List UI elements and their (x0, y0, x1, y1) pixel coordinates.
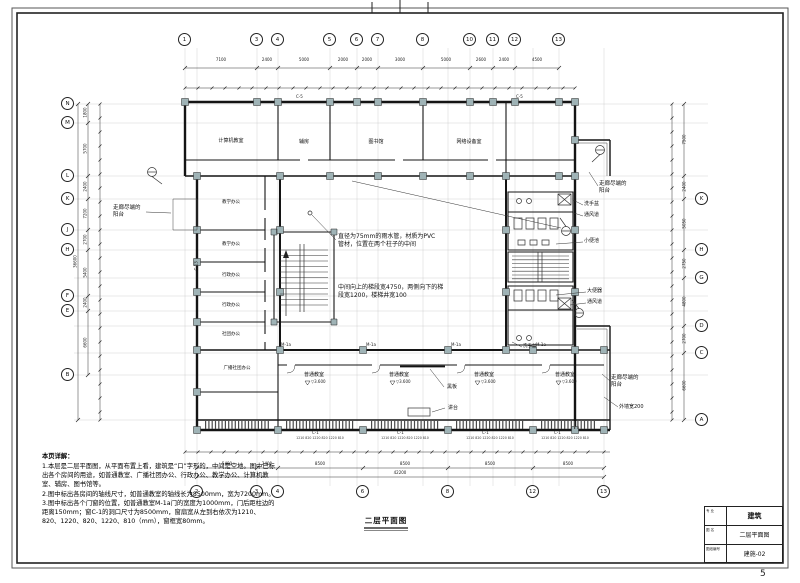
axis-bubble-right: H (695, 243, 708, 256)
drawing-name-value: 二层平面图 (727, 530, 782, 539)
podium-label: 讲台 (448, 405, 458, 411)
window-tag: C-1 (397, 430, 404, 435)
level-marker: ▽3.600 (481, 379, 496, 384)
room-label-broadcast: 广播社团办公 (207, 366, 267, 372)
notes-item: 2.图中标出各房间的轴线尺寸，如普通教室的轴线长为8500mm，宽为7200mm… (42, 490, 276, 499)
title-block: 专 业 建筑 图 名 二层平面图 图纸编号 建施-02 (704, 506, 783, 563)
axis-bubble-top: 8 (416, 33, 429, 46)
room-label-classroom: 普通教室 (540, 372, 590, 378)
washbasin-label: 洗手盆 (523, 344, 537, 350)
podium-rect (408, 408, 430, 416)
door-tag: M-1a (281, 342, 291, 347)
window-sash-dims: 1210 820 1220 820 1220 810 (464, 436, 516, 440)
balcony-note-topright: 走廊尽端的阳台 (599, 181, 629, 195)
dim-text: 8500 (475, 461, 505, 466)
title-block-row: 图纸编号 建施-02 (705, 544, 782, 562)
title-block-label: 图 名 (705, 526, 727, 543)
dim-text: 2400 (489, 57, 519, 62)
dim-text: 8500 (553, 461, 583, 466)
washbasin-label: 洗手盆 (584, 201, 599, 207)
dim-text: 2700 (83, 225, 88, 255)
room-label-classroom: 普通教室 (374, 372, 424, 378)
axis-bubble-top: 1 (178, 33, 191, 46)
plan-title-underline (364, 528, 408, 531)
axis-bubble-bottom: 8 (441, 485, 454, 498)
notes-item: 1.本层是二层平面图，从平面布置上看，建筑是“口”字形的，中间是空地。图中已标出… (42, 462, 276, 489)
room-label-teach-office: 教学办公 (206, 242, 256, 248)
level-marker-triangles (305, 381, 561, 385)
window-tag: C-1 (482, 430, 489, 435)
axis-bubble-top: 13 (552, 33, 565, 46)
level-marker: ▽3.600 (562, 379, 577, 384)
axis-bubble-left: F (61, 289, 74, 302)
door-tag: M-1a (366, 342, 376, 347)
rain-pipe-symbol (308, 211, 312, 215)
drawing-number-value: 建施-02 (727, 549, 782, 558)
dim-text: 2400 (83, 172, 88, 202)
dimension-ticks (76, 66, 686, 479)
axis-bubble-left: L (61, 169, 74, 182)
urinal-label: 小便池 (584, 238, 599, 244)
level-marker: ▽3.600 (311, 379, 326, 384)
axis-bubble-top: 6 (350, 33, 363, 46)
title-block-row: 专 业 建筑 (705, 507, 782, 525)
dim-text: 8500 (390, 461, 420, 466)
dim-text: 5700 (83, 134, 88, 164)
dim-text: 2400 (252, 57, 282, 62)
axis-bubble-right: A (695, 413, 708, 426)
axis-bubble-left: N (61, 97, 74, 110)
dim-text: 6600 (83, 328, 88, 358)
dim-text: 6600 (682, 371, 687, 401)
dim-text: 5050 (682, 209, 687, 239)
page-number: 5 (760, 569, 766, 579)
room-label-aux: 辅房 (292, 139, 316, 145)
axis-bubble-left: K (61, 192, 74, 205)
axis-bubble-left: E (61, 304, 74, 317)
window-tag-top: C-5 (296, 94, 303, 99)
dim-text: 4500 (522, 57, 552, 62)
dim-text: 1800 (83, 98, 88, 128)
title-block-row: 图 名 二层平面图 (705, 525, 782, 543)
dim-text: 2700 (682, 324, 687, 354)
axis-bubble-bottom: 12 (526, 485, 539, 498)
axis-bubble-right: K (695, 192, 708, 205)
drawing-sheet: { "page": { "number": "5" }, "titleblock… (0, 0, 800, 583)
dim-text: 3000 (385, 57, 415, 62)
window-tag-top: C-5 (516, 94, 523, 99)
room-label-teach-office: 教学办公 (206, 200, 256, 206)
dim-text: 2750 (682, 249, 687, 279)
notes-item: 3.图中标出各个门窗的位置，如普通教室M-1a门的宽度为1000mm，门后距柱边… (42, 499, 276, 526)
room-label-admin-office: 行政办公 (206, 303, 256, 309)
axis-bubble-top: 3 (250, 33, 263, 46)
room-label-admin-office: 行政办公 (206, 273, 256, 279)
axis-bubble-top: 7 (371, 33, 384, 46)
dim-text: 2400 (83, 288, 88, 318)
window-tag-left: C-13 (194, 251, 199, 271)
window-sash-dims: 1210 820 1220 820 1220 810 (294, 436, 346, 440)
rain-pipe-note: 直径为75mm的雨水管，材质为PVC管材，位置在两个柱子的中间 (338, 233, 438, 248)
dim-text: 7500 (682, 125, 687, 155)
dim-text: 5000 (289, 57, 319, 62)
room-label-computer: 计算机教室 (206, 138, 256, 144)
dim-text: 4800 (682, 287, 687, 317)
door-tag: M-1a (536, 342, 546, 347)
exterior-wall-note: 外墙宽200 (619, 404, 644, 410)
vent-duct-label: 通风道 (584, 212, 599, 218)
dimension-lines (78, 68, 684, 477)
dim-text: 7100 (206, 57, 236, 62)
axis-bubble-left: B (61, 368, 74, 381)
discipline-value: 建筑 (727, 511, 782, 521)
dim-text: 5000 (431, 57, 461, 62)
axis-bubble-top: 11 (486, 33, 499, 46)
title-block-label: 专 业 (705, 507, 727, 525)
window-sash-dims: 1210 820 1220 820 1220 810 (539, 436, 591, 440)
dim-text: 8500 (305, 461, 335, 466)
notes-block: 本页详解： 1.本层是二层平面图，从平面布置上看，建筑是“口”字形的，中间是空地… (42, 452, 276, 526)
blackboard-label: 黑板 (447, 384, 457, 390)
window-tag: C-1 (312, 430, 319, 435)
vent-duct-label: 通风道 (587, 299, 602, 305)
room-label-library: 图书馆 (356, 139, 396, 145)
axis-bubble-right: G (695, 271, 708, 284)
axis-bubble-top: 5 (323, 33, 336, 46)
axis-bubble-top: 12 (508, 33, 521, 46)
columns (182, 99, 608, 434)
axis-bubble-top: 10 (463, 33, 476, 46)
plan-title: 二层平面图 (346, 515, 426, 526)
level-marker: ▽3.600 (396, 379, 411, 384)
dim-total-text: 42200 (385, 470, 415, 475)
axis-bubble-right: C (695, 346, 708, 359)
axis-bubble-right: D (695, 319, 708, 332)
window-tag: C-1 (554, 430, 561, 435)
balcony-note-left: 走廊尽端的阳台 (113, 205, 143, 219)
title-block-label: 图纸编号 (705, 545, 727, 562)
room-label-classroom: 普通教室 (459, 372, 509, 378)
window-sash-dims: 1210 820 1220 820 1220 810 (379, 436, 431, 440)
dim-text: 5400 (83, 258, 88, 288)
notes-heading: 本页详解： (42, 452, 276, 461)
axis-bubble-left: M (61, 116, 74, 129)
axis-bubble-bottom: 6 (356, 485, 369, 498)
dim-text: 2000 (352, 57, 382, 62)
balcony-note-bottomright: 走廊尽端的阳台 (611, 375, 641, 389)
room-label-classroom: 普通教室 (289, 372, 339, 378)
stair-width-note: 中间向上的梯段宽4750，两侧向下的梯段宽1200，楼梯井宽100 (338, 284, 444, 299)
door-tag: M-1a (451, 342, 461, 347)
walls-courtyard (278, 176, 508, 350)
axis-bubble-top: 4 (271, 33, 284, 46)
room-label-network: 网络设备室 (444, 139, 494, 145)
room-label-club-office: 社团办公 (206, 332, 256, 338)
toilet-label: 大便器 (587, 288, 602, 294)
axis-bubble-left: J (61, 223, 74, 236)
dim-text: 2400 (682, 172, 687, 202)
axis-bubble-bottom: 13 (597, 485, 610, 498)
dim-total-text: 36600 (73, 247, 78, 277)
